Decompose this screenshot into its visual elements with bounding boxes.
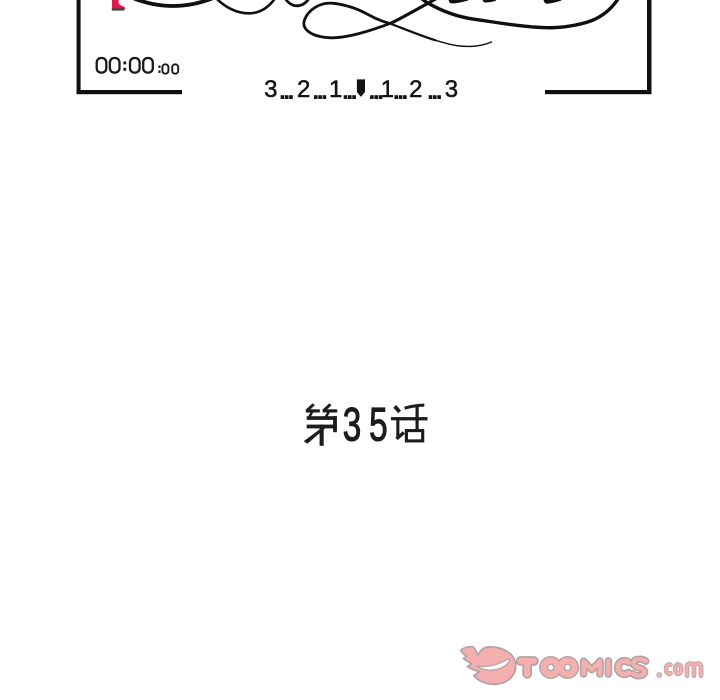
- svg-text:3: 3: [445, 76, 458, 103]
- svg-text:3: 3: [264, 76, 277, 103]
- svg-text:1: 1: [329, 76, 342, 103]
- svg-text:2: 2: [297, 76, 310, 103]
- svg-text:3: 3: [343, 398, 361, 451]
- svg-text:2: 2: [409, 76, 422, 103]
- svg-text:1: 1: [381, 76, 394, 103]
- svg-text:5: 5: [369, 398, 387, 451]
